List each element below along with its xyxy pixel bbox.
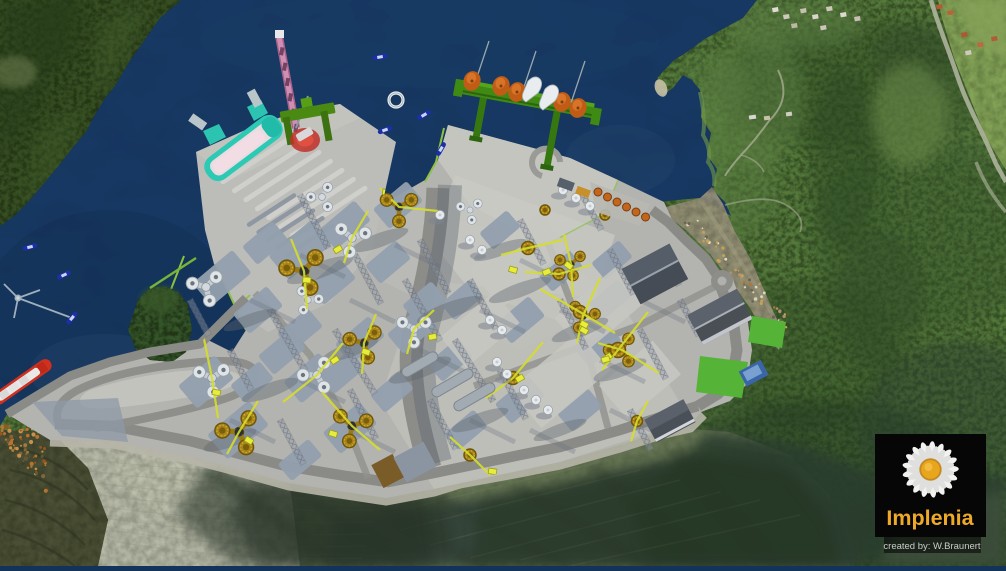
svg-text:Implenia: Implenia <box>886 506 974 530</box>
svg-text:created by: W.Braunert: created by: W.Braunert <box>883 541 981 552</box>
